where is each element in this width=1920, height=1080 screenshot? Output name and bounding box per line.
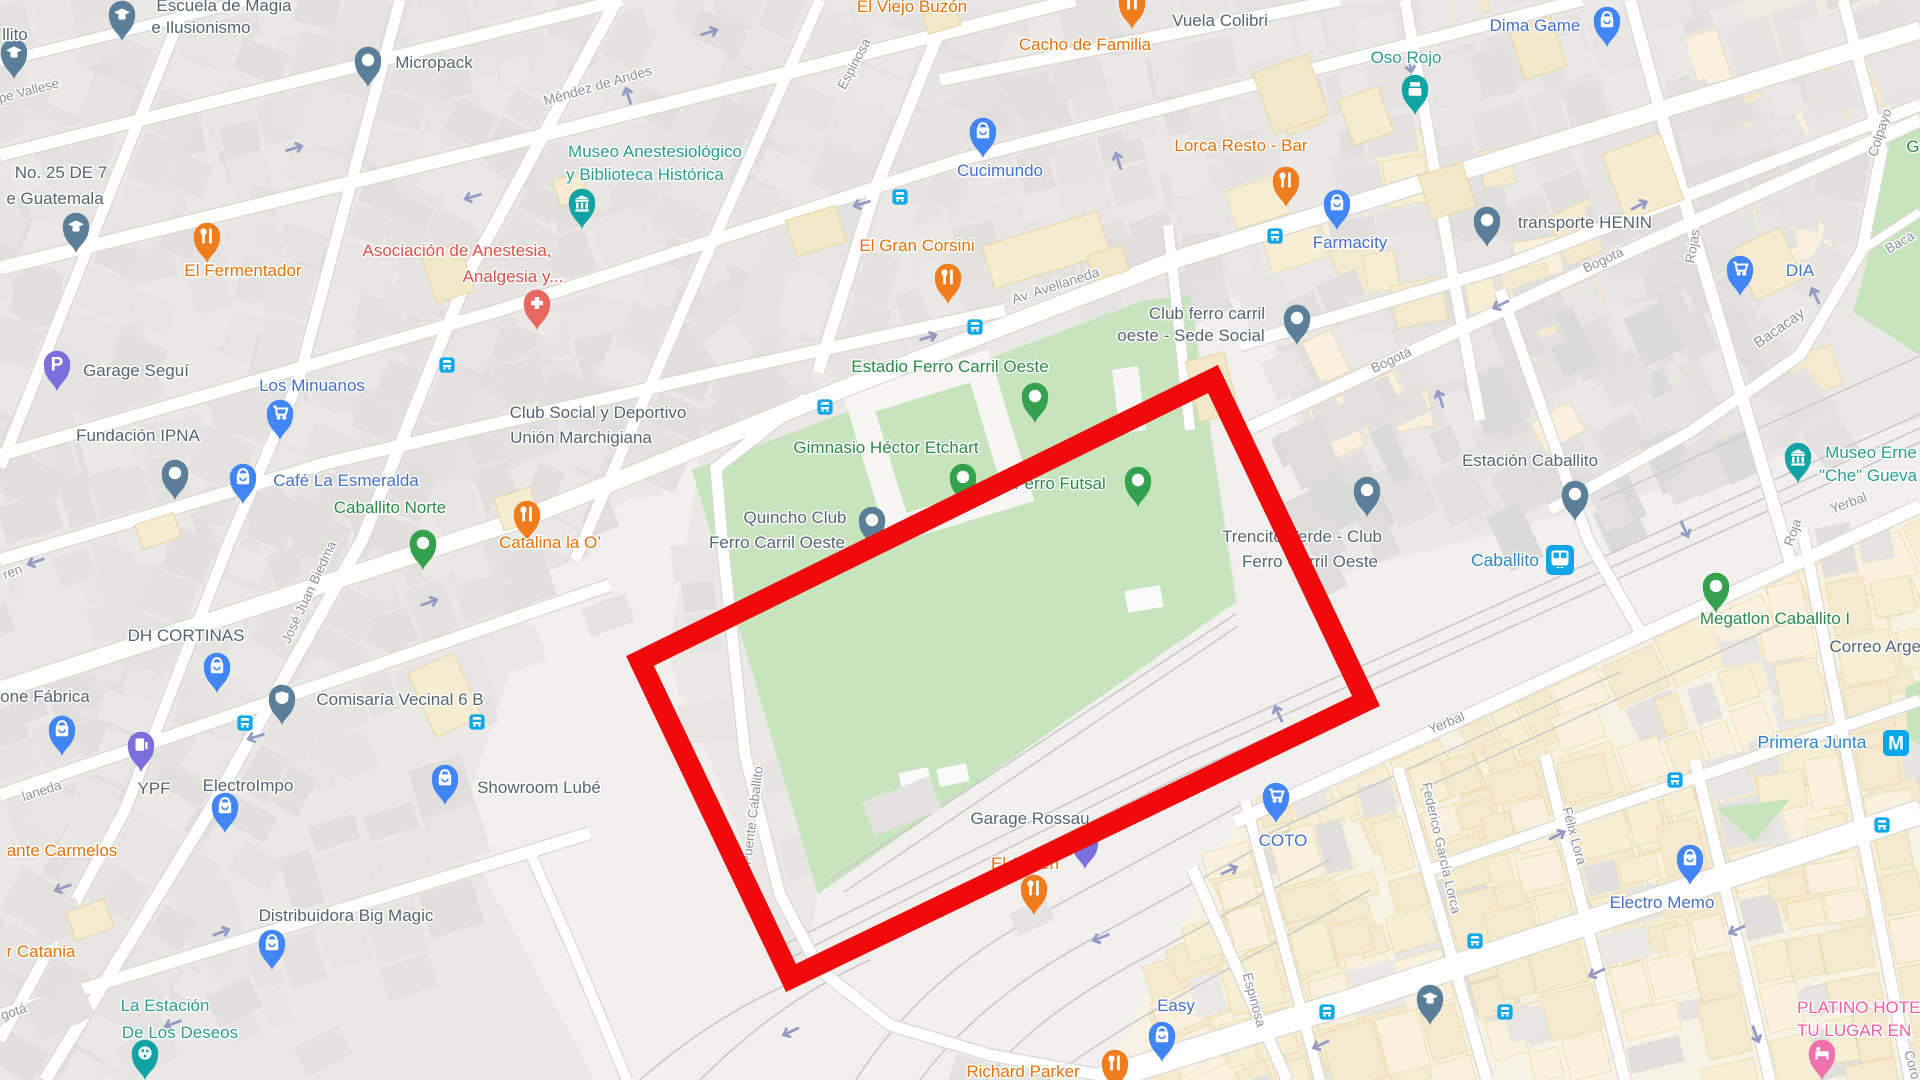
svg-text:ante Carmelos: ante Carmelos — [7, 841, 118, 860]
svg-text:Showroom Lubé: Showroom Lubé — [477, 778, 601, 797]
svg-text:e Guatemala: e Guatemala — [6, 189, 104, 208]
svg-text:Correo Argen: Correo Argen — [1829, 637, 1920, 656]
svg-text:Cucimundo: Cucimundo — [957, 161, 1043, 180]
svg-text:M: M — [1888, 734, 1904, 755]
svg-text:transporte HENIN: transporte HENIN — [1518, 213, 1652, 232]
svg-text:Vuela Colibri: Vuela Colibri — [1172, 11, 1268, 30]
svg-text:El Gran Corsini: El Gran Corsini — [859, 236, 974, 255]
svg-text:Primera Junta: Primera Junta — [1758, 732, 1867, 752]
svg-text:Garage Seguí: Garage Seguí — [83, 361, 189, 380]
svg-text:El Viejo Buzón: El Viejo Buzón — [857, 0, 967, 16]
svg-text:Escuela de Magia: Escuela de Magia — [156, 0, 292, 15]
svg-text:Museo Erne: Museo Erne — [1825, 443, 1917, 462]
svg-text:COTO: COTO — [1259, 831, 1308, 850]
svg-text:llito: llito — [2, 25, 28, 44]
svg-text:La Estación: La Estación — [121, 996, 210, 1015]
svg-text:Fundación IPNA: Fundación IPNA — [76, 426, 200, 445]
svg-text:Quincho Club: Quincho Club — [743, 508, 846, 527]
svg-text:Club ferro carril: Club ferro carril — [1149, 304, 1265, 323]
svg-text:Estadio Ferro Carril Oeste: Estadio Ferro Carril Oeste — [851, 357, 1048, 376]
svg-text:G: G — [1906, 137, 1919, 156]
svg-text:Comisaría Vecinal 6 B: Comisaría Vecinal 6 B — [316, 690, 483, 709]
svg-text:"Che" Gueva: "Che" Gueva — [1819, 466, 1918, 485]
svg-text:e Ilusionismo: e Ilusionismo — [151, 18, 250, 37]
svg-text:ElectroImpo: ElectroImpo — [203, 776, 294, 795]
svg-text:Café La Esmeralda: Café La Esmeralda — [273, 471, 419, 490]
svg-text:Dima Game: Dima Game — [1490, 16, 1581, 35]
svg-text:Garage Rossau: Garage Rossau — [970, 809, 1089, 828]
svg-text:Museo Anestesiológico: Museo Anestesiológico — [568, 142, 742, 161]
svg-text:Los Minuanos: Los Minuanos — [259, 376, 365, 395]
svg-text:El Fermentador: El Fermentador — [184, 261, 301, 280]
svg-text:Caballito Norte: Caballito Norte — [334, 498, 446, 517]
svg-text:Lorca Resto - Bar: Lorca Resto - Bar — [1174, 136, 1308, 155]
svg-text:y Biblioteca Histórica: y Biblioteca Histórica — [566, 165, 724, 184]
svg-text:Micropack: Micropack — [395, 53, 473, 72]
svg-text:De Los Deseos: De Los Deseos — [122, 1023, 238, 1042]
svg-text:Distribuidora Big Magic: Distribuidora Big Magic — [259, 906, 434, 925]
svg-text:Asociación de Anestesia,: Asociación de Anestesia, — [362, 241, 551, 260]
svg-text:Farmacity: Farmacity — [1313, 233, 1388, 252]
svg-text:Cacho de Familia: Cacho de Familia — [1019, 35, 1152, 54]
svg-text:Club Social y Deportivo: Club Social y Deportivo — [510, 403, 687, 422]
svg-text:Analgesia y...: Analgesia y... — [463, 267, 564, 286]
svg-text:DH CORTINAS: DH CORTINAS — [128, 626, 245, 645]
svg-text:oeste - Sede Social: oeste - Sede Social — [1117, 326, 1264, 345]
svg-text:Easy: Easy — [1157, 996, 1195, 1015]
svg-text:YPF: YPF — [137, 779, 170, 798]
svg-text:Electro Memo: Electro Memo — [1610, 893, 1715, 912]
svg-text:Ferro Carril Oeste: Ferro Carril Oeste — [709, 533, 845, 552]
svg-text:Caballito: Caballito — [1471, 550, 1539, 570]
svg-text:Estación Caballito: Estación Caballito — [1462, 451, 1598, 470]
svg-text:Catalina la O’: Catalina la O’ — [499, 533, 601, 552]
svg-text:No. 25 DE 7: No. 25 DE 7 — [15, 163, 108, 182]
svg-text:PLATINO HOTE: PLATINO HOTE — [1797, 998, 1920, 1017]
svg-text:DIA: DIA — [1786, 261, 1815, 280]
svg-text:TU LUGAR EN: TU LUGAR EN — [1797, 1021, 1911, 1040]
svg-text:r Catania: r Catania — [7, 942, 77, 961]
svg-text:Megatlon Caballito I: Megatlon Caballito I — [1700, 609, 1850, 628]
svg-text:Richard Parker: Richard Parker — [966, 1062, 1080, 1080]
svg-text:one Fábrica: one Fábrica — [0, 687, 90, 706]
svg-text:P: P — [51, 355, 64, 376]
svg-text:Gimnasio Héctor Etchart: Gimnasio Héctor Etchart — [793, 438, 978, 457]
svg-text:Unión Marchigiana: Unión Marchigiana — [510, 428, 652, 447]
svg-text:Oso Rojo: Oso Rojo — [1371, 48, 1442, 67]
